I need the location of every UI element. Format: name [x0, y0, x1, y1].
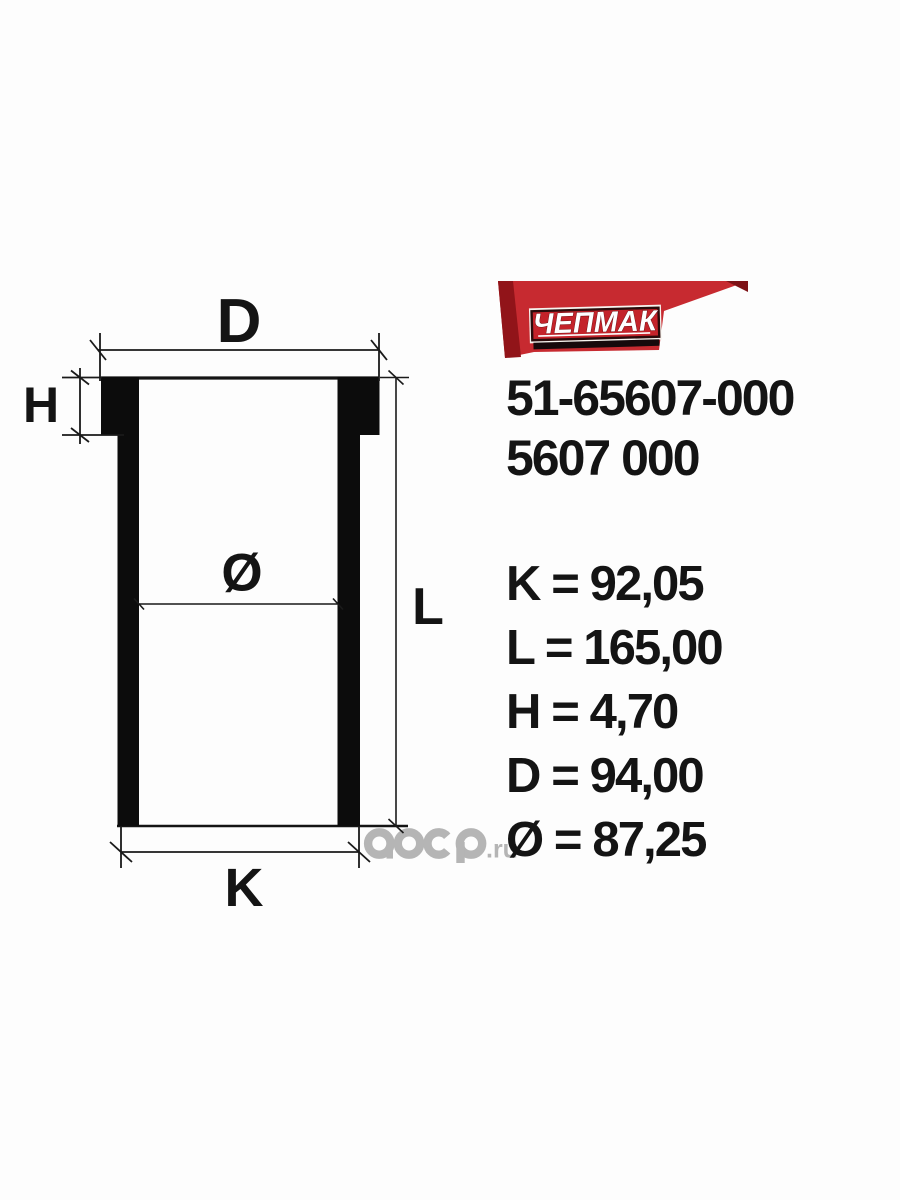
- svg-text:K: K: [225, 858, 264, 918]
- svg-text:D: D: [217, 287, 262, 356]
- svg-text:L: L: [412, 578, 444, 636]
- svg-text:Ø = 87,25: Ø = 87,25: [506, 813, 706, 867]
- svg-text:L = 165,00: L = 165,00: [506, 621, 722, 675]
- svg-text:H = 4,70: H = 4,70: [506, 685, 678, 739]
- svg-text:H: H: [23, 377, 59, 433]
- svg-text:5607 000: 5607 000: [506, 430, 699, 486]
- svg-text:D = 94,00: D = 94,00: [506, 749, 703, 803]
- svg-text:Ø: Ø: [221, 544, 262, 603]
- svg-text:51-65607-000: 51-65607-000: [506, 370, 794, 426]
- svg-text:K = 92,05: K = 92,05: [506, 557, 703, 611]
